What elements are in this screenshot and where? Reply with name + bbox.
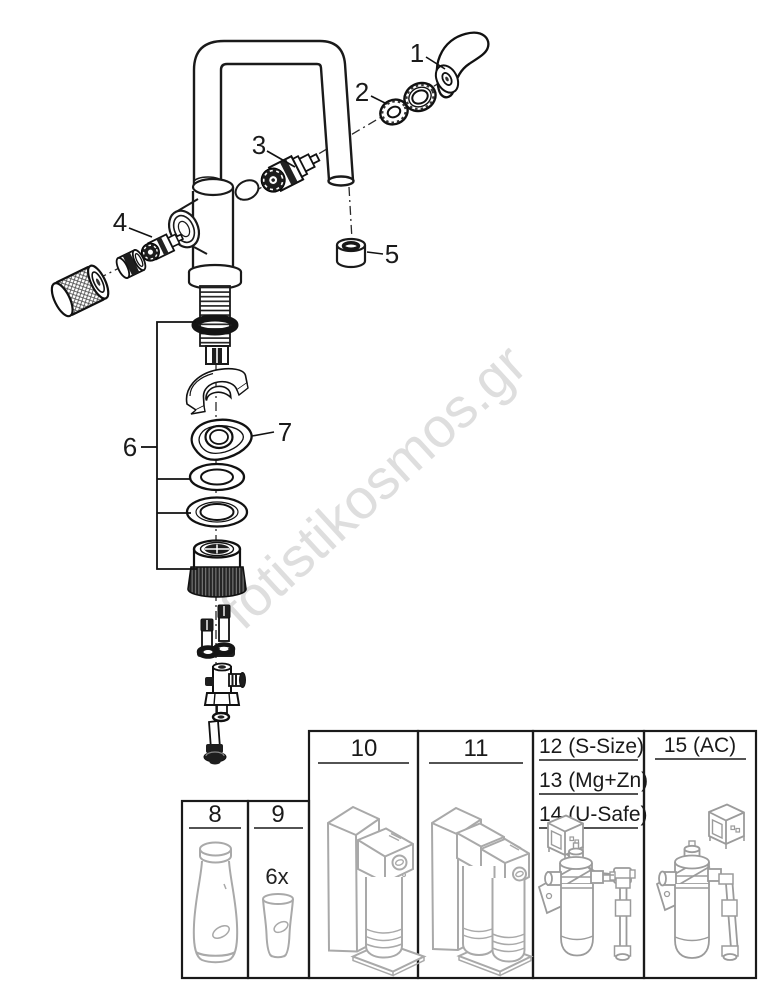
panel-8-label: 8: [208, 801, 221, 828]
small-washer: [213, 713, 229, 721]
callout-1: 1: [410, 38, 424, 68]
glass-drawing: [263, 894, 293, 957]
leader-7: [252, 432, 274, 436]
knurled-cap: [48, 263, 113, 319]
axis-aerator: [349, 187, 352, 240]
watermark-text: fotistikosmos.gr: [209, 332, 538, 641]
leader-2: [371, 96, 387, 104]
panel-11-label: 11: [464, 735, 489, 762]
quantity-6x: 6x: [265, 864, 288, 889]
mounting-clamp: [187, 369, 248, 414]
panel-12-label: 12 (S-Size): [539, 735, 644, 758]
panel-15-label: 15 (AC): [664, 734, 736, 757]
panel-13-label: 13 (Mg+Zn): [539, 769, 648, 792]
panel-9-label: 9: [271, 801, 284, 828]
rubber-washer-1: [190, 464, 244, 490]
leader-5: [367, 252, 383, 254]
filter-meter-drawing: [539, 816, 635, 961]
callout-5: 5: [385, 239, 399, 269]
filter-ac-drawing: [657, 805, 744, 961]
threaded-shank: [195, 286, 235, 364]
hose-end: [204, 721, 226, 765]
carafe-drawing: [194, 843, 237, 963]
panel-10-label: 10: [351, 735, 378, 762]
callout-3: 3: [252, 130, 266, 160]
cooler-single-drawing: [328, 807, 424, 976]
spout-end-cap: [329, 177, 354, 186]
axis-lines: [64, 72, 458, 757]
parts-diagram-page: fotistikosmos.gr: [0, 0, 768, 1000]
bracket-6: [141, 322, 197, 569]
faucet-body: [163, 176, 261, 289]
callout-6: 6: [123, 432, 137, 462]
callout-2: 2: [355, 77, 369, 107]
triangle-washer: [192, 420, 252, 460]
aerator-nut: [337, 239, 365, 267]
leader-4: [129, 228, 152, 237]
faucet-spout: [194, 41, 354, 186]
tee-valve: [205, 664, 246, 714]
cooler-double-drawing: [432, 808, 531, 976]
rubber-washer-2: [187, 498, 247, 527]
callout-4: 4: [113, 207, 127, 237]
flow-cartridge: [257, 146, 324, 197]
callout-7: 7: [278, 417, 292, 447]
